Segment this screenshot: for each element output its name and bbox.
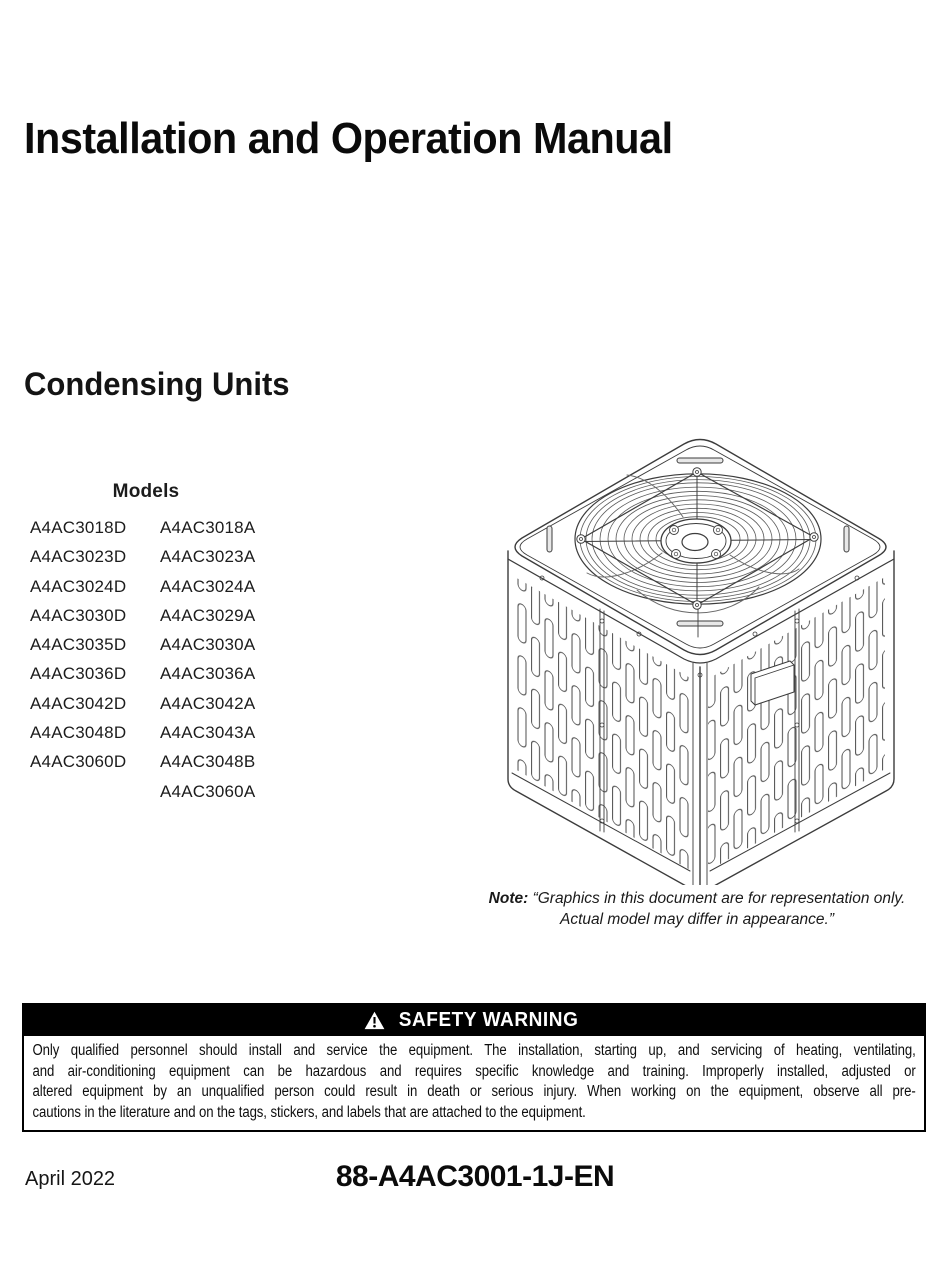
- condensing-unit-illustration: [487, 425, 907, 885]
- models-table: A4AC3018D A4AC3018A A4AC3023D A4AC3023A …: [30, 513, 262, 806]
- model-cell: A4AC3023D: [30, 542, 160, 571]
- section-title: Condensing Units: [24, 366, 290, 403]
- publication-date: April 2022: [25, 1168, 115, 1191]
- model-cell: A4AC3030A: [160, 630, 262, 659]
- model-cell: A4AC3060A: [160, 777, 262, 806]
- warning-line: and air-conditioning equipment can be ha…: [33, 1062, 916, 1083]
- safety-warning-box: SAFETY WARNING Only qualified personnel …: [22, 1003, 926, 1132]
- safety-warning-header: SAFETY WARNING: [24, 1005, 924, 1036]
- model-cell: A4AC3029A: [160, 601, 262, 630]
- page-title: Installation and Operation Manual: [24, 114, 673, 164]
- note-line1: “Graphics in this document are for repre…: [533, 890, 906, 907]
- model-cell: A4AC3042A: [160, 689, 262, 718]
- model-cell: A4AC3036A: [160, 659, 262, 688]
- safety-warning-title: SAFETY WARNING: [399, 1009, 579, 1032]
- model-cell: A4AC3018A: [160, 513, 262, 542]
- model-cell: A4AC3023A: [160, 542, 262, 571]
- models-heading: Models: [30, 481, 262, 503]
- model-cell: A4AC3024A: [160, 572, 262, 601]
- warning-line: Only qualified personnel should install …: [33, 1041, 916, 1062]
- safety-warning-text: Only qualified personnel should install …: [24, 1036, 924, 1130]
- model-cell: A4AC3024D: [30, 572, 160, 601]
- model-cell: A4AC3048D: [30, 718, 160, 747]
- model-cell: A4AC3043A: [160, 718, 262, 747]
- warning-line: altered equipment by an unqualified pers…: [33, 1082, 916, 1103]
- model-cell: A4AC3036D: [30, 659, 160, 688]
- model-cell: A4AC3048B: [160, 747, 262, 776]
- fan-hub: [661, 519, 731, 563]
- warning-line: cautions in the literature and on the ta…: [33, 1103, 916, 1124]
- note-line2: Actual model may differ in appearance.”: [478, 909, 916, 930]
- model-cell: A4AC3018D: [30, 513, 160, 542]
- model-cell: A4AC3030D: [30, 601, 160, 630]
- document-number: 88-A4AC3001-1J-EN: [0, 1160, 950, 1194]
- manual-cover-page: Installation and Operation Manual Conden…: [0, 0, 950, 1267]
- model-cell: [30, 777, 160, 806]
- model-cell: A4AC3060D: [30, 747, 160, 776]
- representation-note: Note: “Graphics in this document are for…: [478, 888, 916, 930]
- model-cell: A4AC3035D: [30, 630, 160, 659]
- note-label: Note:: [489, 890, 529, 907]
- warning-triangle-icon: [364, 1011, 385, 1030]
- models-list: Models A4AC3018D A4AC3018A A4AC3023D A4A…: [30, 481, 262, 806]
- model-cell: A4AC3042D: [30, 689, 160, 718]
